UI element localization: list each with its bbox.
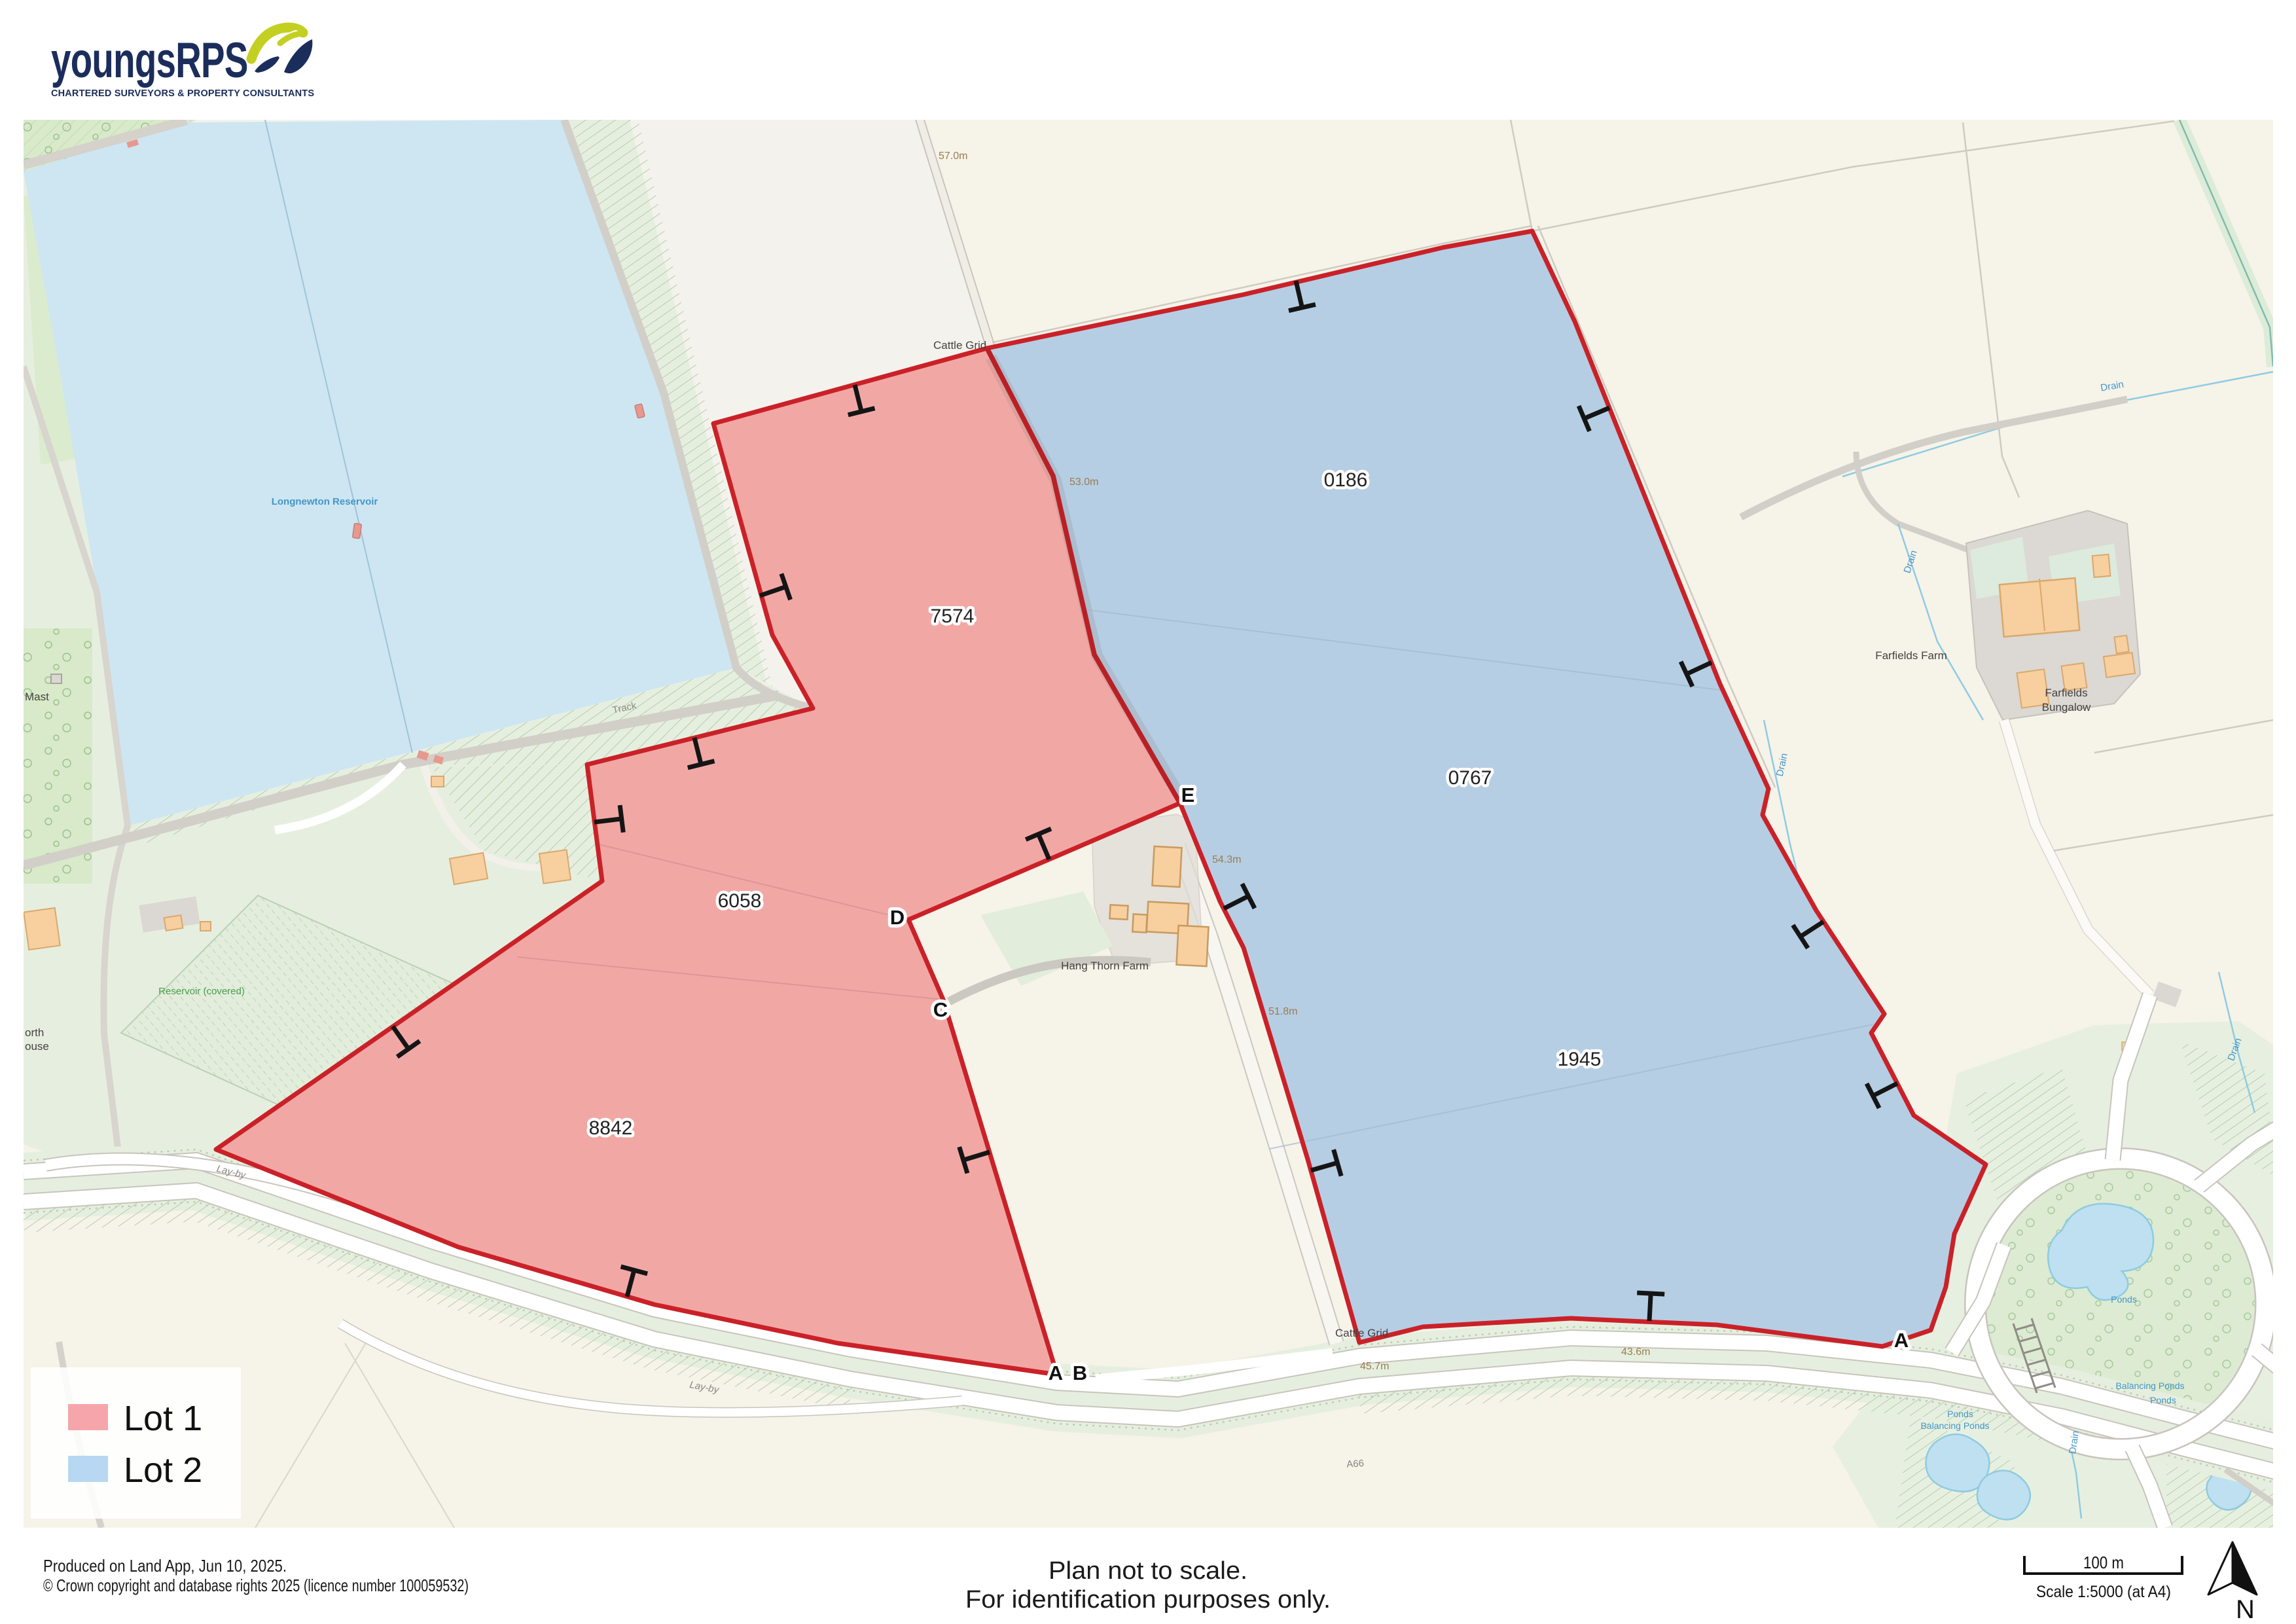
svg-text:D: D xyxy=(890,906,905,929)
svg-text:Reservoir (covered): Reservoir (covered) xyxy=(158,986,245,997)
svg-text:43.6m: 43.6m xyxy=(1621,1346,1650,1358)
svg-text:Ponds: Ponds xyxy=(2150,1395,2176,1405)
svg-text:B: B xyxy=(1073,1362,1087,1384)
svg-text:1945: 1945 xyxy=(1558,1049,1602,1070)
svg-text:8842: 8842 xyxy=(589,1117,633,1139)
svg-text:A: A xyxy=(1894,1329,1909,1352)
svg-text:Hang Thorn Farm: Hang Thorn Farm xyxy=(1061,960,1149,972)
svg-text:For identification purposes on: For identification purposes only. xyxy=(965,1586,1331,1614)
svg-text:Cattle Grid: Cattle Grid xyxy=(1335,1327,1388,1339)
svg-text:Ponds: Ponds xyxy=(1947,1409,1973,1419)
svg-text:57.0m: 57.0m xyxy=(939,151,967,162)
svg-text:51.8m: 51.8m xyxy=(1268,1006,1297,1017)
svg-text:Balancing Ponds: Balancing Ponds xyxy=(1920,1420,1989,1431)
svg-text:45.7m: 45.7m xyxy=(1360,1361,1389,1372)
svg-text:orth: orth xyxy=(25,1026,44,1039)
svg-text:6058: 6058 xyxy=(718,890,762,912)
svg-text:© Crown copyright and database: © Crown copyright and database rights 20… xyxy=(43,1576,469,1595)
svg-text:Mast: Mast xyxy=(25,691,49,703)
svg-text:7574: 7574 xyxy=(931,605,975,627)
svg-text:Farfields: Farfields xyxy=(2045,687,2087,699)
svg-text:CHARTERED SURVEYORS & PROPERTY: CHARTERED SURVEYORS & PROPERTY CONSULTAN… xyxy=(51,88,314,99)
svg-text:Scale 1:5000 (at A4): Scale 1:5000 (at A4) xyxy=(2036,1583,2171,1601)
svg-text:A: A xyxy=(1049,1362,1063,1384)
svg-text:Produced on Land App, Jun 10,: Produced on Land App, Jun 10, 2025. xyxy=(43,1556,287,1576)
svg-text:C: C xyxy=(933,998,948,1021)
svg-text:Longnewton Reservoir: Longnewton Reservoir xyxy=(272,496,378,507)
svg-text:Bungalow: Bungalow xyxy=(2042,701,2091,713)
svg-text:Farfields Farm: Farfields Farm xyxy=(1875,649,1947,662)
svg-text:Balancing Ponds: Balancing Ponds xyxy=(2115,1380,2184,1391)
svg-text:N: N xyxy=(2236,1595,2255,1624)
svg-text:0186: 0186 xyxy=(1324,469,1368,491)
svg-text:Ponds: Ponds xyxy=(2111,1294,2137,1305)
svg-text:Plan not to scale.: Plan not to scale. xyxy=(1049,1557,1247,1585)
svg-text:ouse: ouse xyxy=(25,1040,49,1053)
svg-text:53.0m: 53.0m xyxy=(1069,477,1098,488)
svg-text:Cattle Grid: Cattle Grid xyxy=(933,339,986,352)
svg-text:100 m: 100 m xyxy=(2083,1553,2124,1572)
svg-text:E: E xyxy=(1181,784,1195,806)
svg-text:youngsRPS: youngsRPS xyxy=(51,33,248,88)
svg-text:A66: A66 xyxy=(1346,1458,1365,1470)
svg-text:Lot 2: Lot 2 xyxy=(124,1451,202,1490)
svg-text:0767: 0767 xyxy=(1448,767,1492,789)
svg-text:54.3m: 54.3m xyxy=(1212,854,1241,865)
svg-text:Lot 1: Lot 1 xyxy=(124,1399,202,1438)
